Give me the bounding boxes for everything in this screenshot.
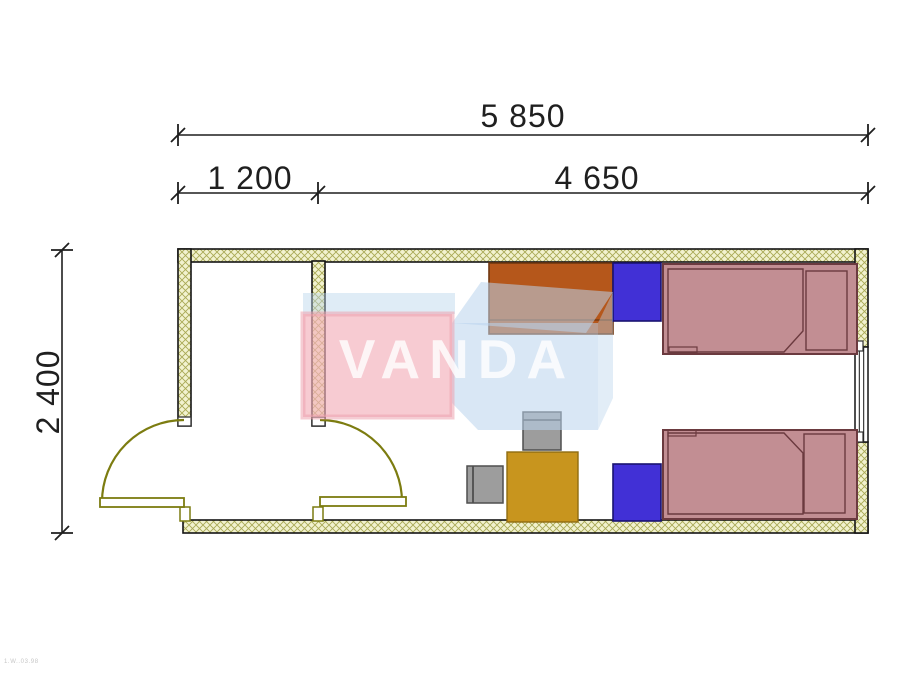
floor-plan-canvas: 5 850 1 200 4 650 2 400 VANDA 1.W..03.98 — [0, 0, 924, 700]
interior-door-leaf — [320, 497, 406, 506]
entrance-door-swing-arc — [102, 420, 184, 502]
dimension-label-depth: 2 400 — [29, 337, 67, 447]
dimension-label-main-room-width: 4 650 — [547, 159, 647, 197]
chair-left — [467, 466, 503, 503]
entrance-door-leaf — [100, 498, 184, 507]
dimension-label-left-room-width: 1 200 — [200, 159, 300, 197]
wall-left-end-cap — [178, 417, 191, 426]
doors — [100, 420, 406, 521]
wall-left — [178, 249, 191, 426]
interior-door-swing-arc — [320, 420, 402, 502]
interior-door-jamb — [313, 507, 323, 521]
cabinet-top — [613, 263, 661, 321]
entrance-door-jamb — [180, 507, 190, 521]
cabinet-bottom — [613, 464, 661, 521]
watermark-blue-band — [303, 293, 455, 314]
bed-top-pillow — [806, 271, 847, 350]
bed-top — [663, 264, 857, 354]
corner-code-text: 1.W..03.98 — [4, 658, 39, 665]
bed-bottom-pillow — [804, 434, 845, 513]
bed-bottom — [663, 430, 857, 519]
dimension-label-total-width: 5 850 — [440, 97, 606, 135]
watermark-text: VANDA — [326, 324, 588, 394]
window — [852, 341, 868, 442]
table — [507, 452, 578, 522]
wall-top — [178, 249, 868, 262]
window-frame — [855, 347, 868, 442]
